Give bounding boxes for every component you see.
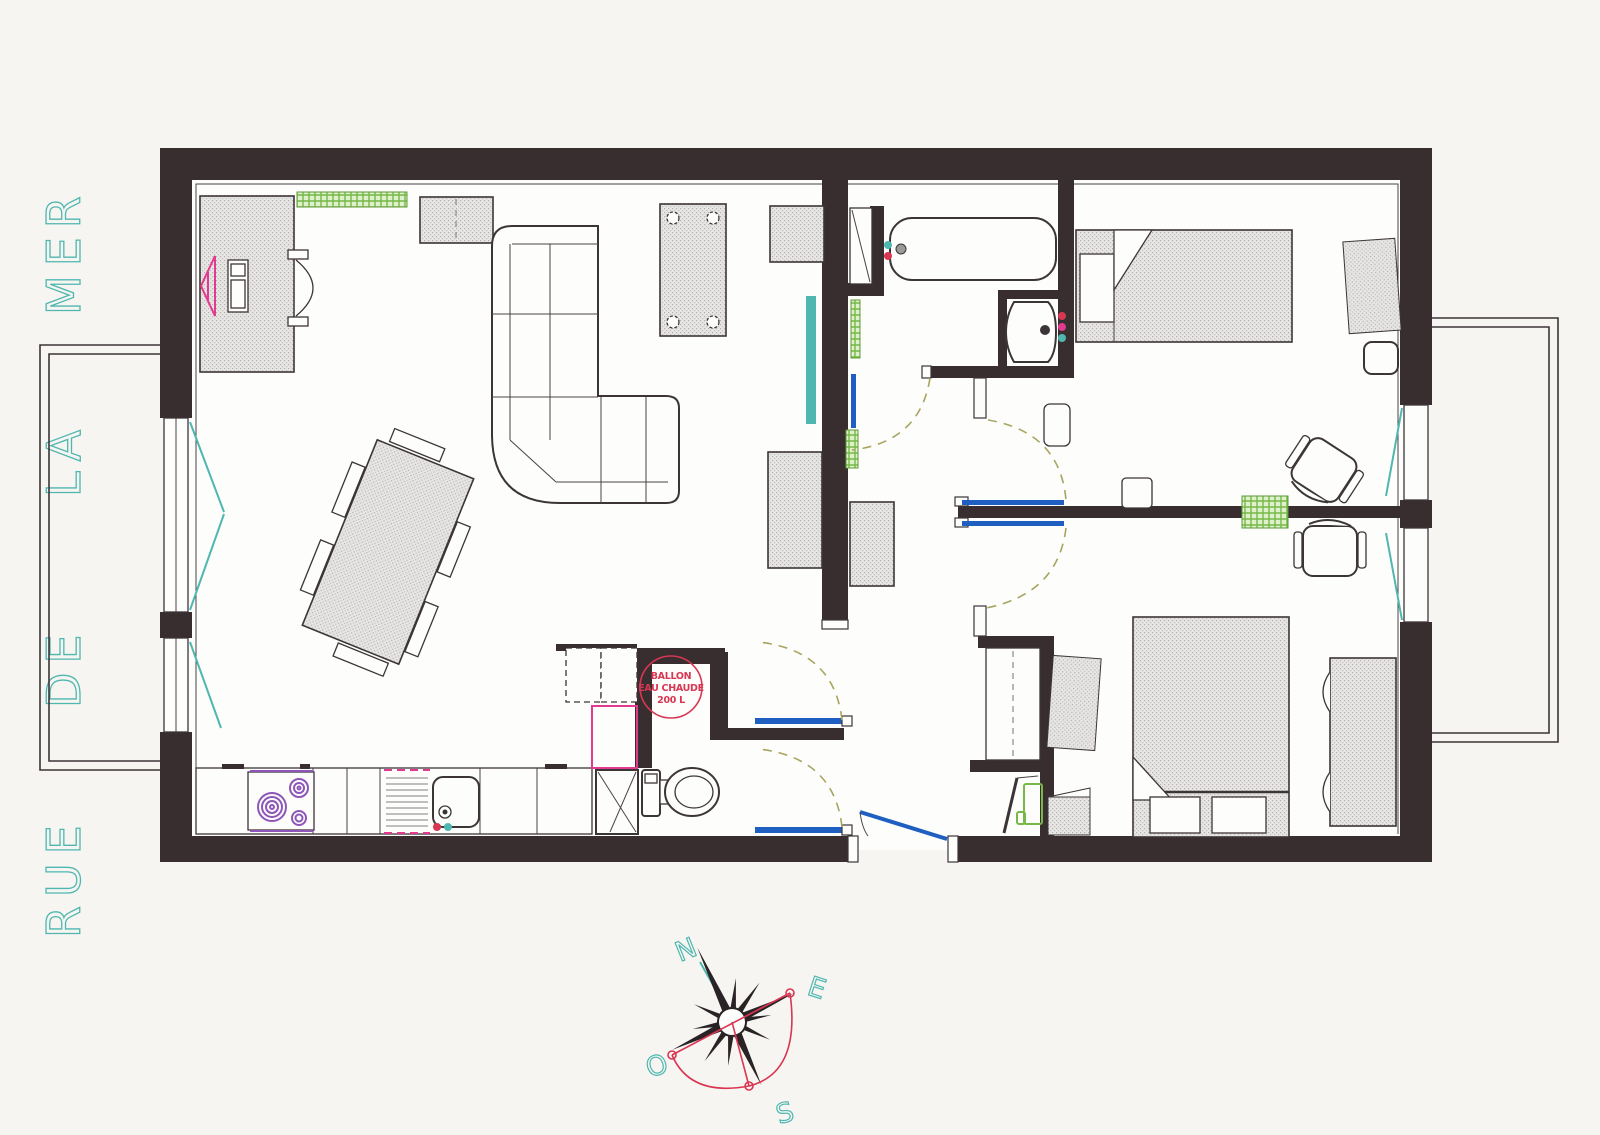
door-threshold: [755, 718, 843, 724]
cold-tap-icon: [884, 241, 892, 249]
right-wall-upper: [1400, 148, 1432, 405]
floorplan-drawing: MER LA DE RUE: [0, 0, 1600, 1135]
bathtub: [884, 218, 1056, 280]
wall-stub: [974, 606, 986, 636]
hall-closet: [986, 648, 1040, 760]
bottom-wall-left: [160, 836, 848, 862]
compass-south-label: S: [773, 1096, 798, 1130]
water-heater-line2: EAU CHAUDE: [638, 683, 704, 694]
cold-tap-icon: [1058, 334, 1066, 342]
kitchen: [196, 764, 638, 834]
hot-tap-icon: [1058, 312, 1066, 320]
wall-panel: [1047, 655, 1101, 750]
drainer: [384, 770, 430, 833]
wall-cap: [822, 620, 848, 629]
street-word-de: DE: [37, 626, 91, 709]
cold-tap-icon: [444, 823, 452, 831]
door-rail: [851, 374, 856, 428]
stove: [248, 771, 314, 831]
window-frame: [1404, 405, 1428, 500]
street-word-rue: RUE: [37, 816, 91, 938]
door-rail: [962, 521, 1064, 526]
top-wall: [160, 148, 1432, 180]
double-bed: [1133, 617, 1289, 837]
street-word-mer: MER: [37, 187, 91, 315]
drain-icon: [1040, 325, 1050, 335]
door-threshold: [755, 827, 843, 833]
single-bed: [1076, 230, 1292, 342]
compass-rose: N E S O: [638, 919, 830, 1131]
street-word-la: LA: [37, 421, 91, 497]
desk: [1323, 658, 1396, 826]
right-wall-lower: [1400, 622, 1432, 862]
entrance-post: [848, 836, 858, 862]
side-table: [1122, 478, 1152, 508]
stool: [1044, 404, 1070, 446]
hall-cabinet: [850, 502, 894, 586]
rug: [660, 204, 726, 336]
bathroom-right-wall: [1058, 180, 1074, 378]
wall-cap: [842, 825, 852, 835]
left-wall-upper: [160, 148, 192, 418]
desk: [1343, 238, 1401, 333]
radiator: [851, 300, 860, 358]
drain-icon: [896, 244, 906, 254]
radiator: [1242, 496, 1288, 528]
toilet: [642, 768, 719, 816]
bedrooms-partition-wall: [958, 506, 1400, 518]
bathroom-door-leaf: [974, 378, 986, 418]
bathroom-bottom-wall: [925, 366, 1074, 378]
water-heater-line1: BALLON: [651, 671, 692, 682]
pillow: [1080, 254, 1114, 322]
hot-tap-icon: [433, 823, 441, 831]
street-label: MER LA DE RUE: [37, 187, 91, 938]
living-hall-wall: [822, 180, 848, 622]
hot-tap-icon: [884, 252, 892, 260]
entrance-post: [948, 836, 958, 862]
wall-cupboard: [601, 648, 637, 702]
wall-cupboard: [566, 648, 601, 702]
right-balcony: [1430, 318, 1558, 742]
chair: [1364, 342, 1398, 374]
bookshelf: [768, 452, 822, 568]
window-frame: [1404, 528, 1428, 622]
door-rail: [962, 500, 1064, 505]
kitchen-sink: [433, 777, 479, 831]
left-wall-mid: [160, 612, 192, 638]
pillow: [1150, 797, 1200, 833]
pillow: [1212, 797, 1266, 833]
fridge: [596, 770, 638, 834]
right-wall-mid: [1400, 500, 1432, 528]
wall-cap: [922, 366, 931, 378]
water-heater-line3: 200 L: [657, 695, 685, 706]
compass-star: [638, 919, 824, 1113]
floorplan-page: MER LA DE RUE: [0, 0, 1600, 1135]
wall-cap: [842, 716, 852, 726]
compass-east-label: E: [804, 971, 830, 1006]
cabinet: [770, 206, 824, 262]
bottom-wall-right: [958, 836, 1432, 862]
radiator: [297, 192, 407, 207]
glass-partition: [806, 296, 816, 424]
mixer-tap-icon: [1058, 323, 1066, 331]
radiator: [846, 430, 858, 468]
compass-north-label: N: [671, 932, 701, 968]
